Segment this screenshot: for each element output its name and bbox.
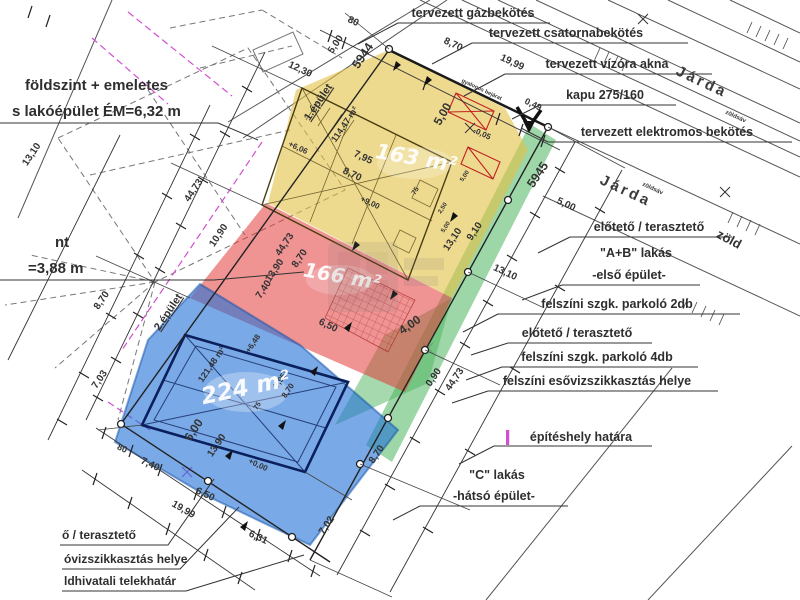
label-rear-building: -hátsó épület- (453, 489, 535, 503)
label-cut-terrace: ő / terasztető (62, 528, 136, 542)
dimension-text-10: 13,10 (20, 141, 43, 168)
site-plan-page: 808,7019,990,4912,305,0044,7310,908,707,… (0, 0, 800, 600)
dimension-text-9: 7,03 (90, 368, 110, 391)
label-height-388: =3,88 m (28, 260, 83, 277)
site-plan-drawing: 808,7019,990,4912,305,0044,7310,908,707,… (0, 0, 800, 600)
dimension-text-8: 8,70 (92, 289, 112, 312)
dimension-text-24: 5,00 (555, 196, 578, 214)
green-verge-label-cut: zöld (714, 226, 744, 251)
dimension-text-0: 80 (346, 14, 361, 29)
label-electric-connection: tervezett elektromos bekötés (581, 125, 753, 139)
label-parking-2: felszíni szgk. parkoló 2db (541, 297, 693, 311)
dimension-text-4: 12,30 (286, 59, 314, 80)
dimension-text-39: 6,31 (247, 529, 270, 547)
label-cut-soakaway: óvizszikkasztás helye (64, 552, 188, 566)
dimension-text-2: 19,99 (498, 52, 526, 73)
label-ground-floor-storey: földszint + emeletes (25, 77, 168, 94)
label-gate: kapu 275/160 (566, 88, 644, 102)
label-rainwater-soakaway: felszíni esővizszikkasztás helye (503, 374, 691, 388)
dimension-text-7: 10,90 (207, 222, 230, 249)
label-residential-height: s lakóépület ÉM=6,32 m (12, 103, 181, 120)
label-sewer-connection: tervezett csatornabekötés (489, 26, 643, 40)
label-cut-land-registry-boundary: ldhivatali telekhatár (64, 574, 176, 588)
epiteshely-magenta-tick (506, 430, 509, 445)
label-canopy-terrace-a: előtető / terasztető (594, 220, 705, 234)
sidewalk-label-2: Járda (597, 172, 654, 211)
green-verge-label-1: zöldsáv (724, 110, 747, 125)
dimension-text-1: 8,70 (442, 36, 465, 54)
label-water-meter-shaft: tervezett vízóra akna (546, 57, 670, 71)
label-nt-cut: nt (55, 234, 69, 251)
label-building-site-limit: építéshely határa (530, 430, 633, 444)
label-first-building: -első épület- (592, 268, 666, 282)
dimension-text-37: 19,99 (170, 499, 198, 521)
label-ab-flat: "A+B" lakás (600, 246, 672, 260)
label-parking-4: felszíni szgk. parkoló 4db (521, 350, 673, 364)
label-gas-connection: tervezett gázbekötés (412, 6, 535, 20)
label-c-flat: "C" lakás (469, 468, 525, 482)
dimension-text-25: 13,10 (491, 262, 519, 283)
label-canopy-terrace-b: előtető / terasztető (522, 326, 633, 340)
dimension-text-29: 44,73 (443, 366, 466, 393)
